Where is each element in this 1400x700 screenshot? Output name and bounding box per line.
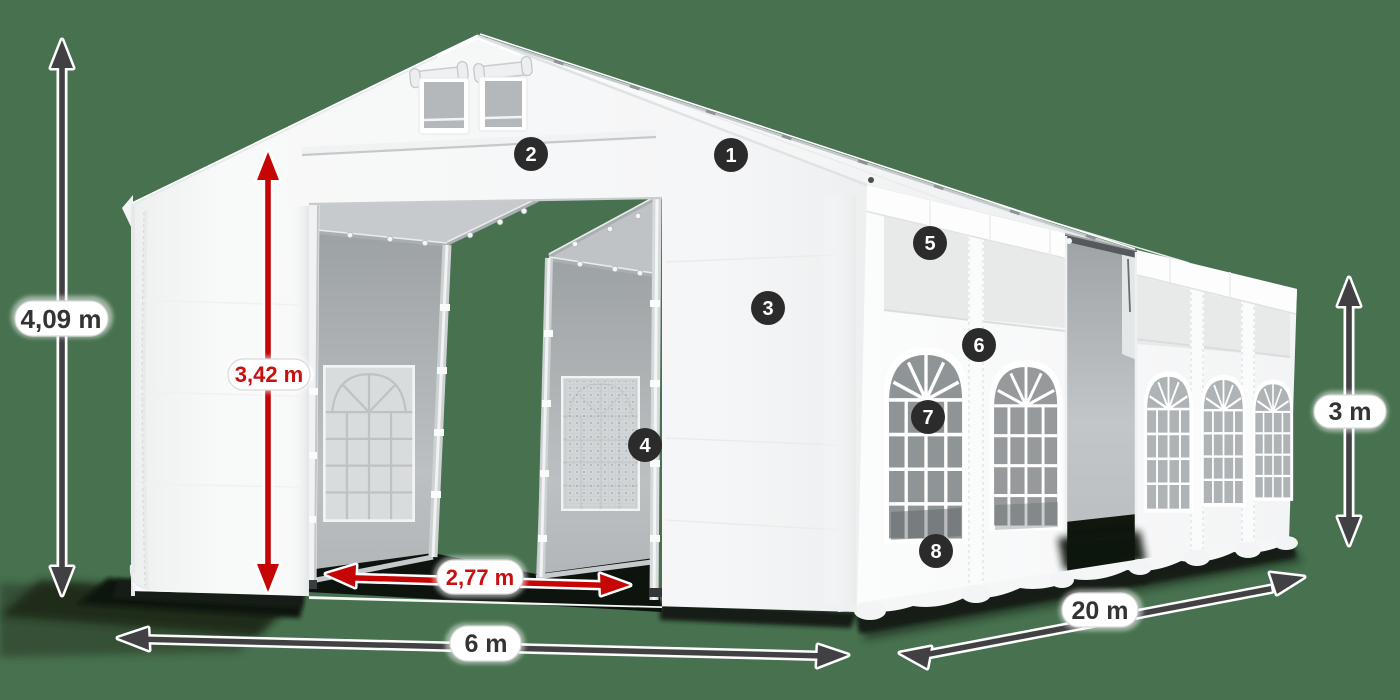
svg-text:20 m: 20 m: [1072, 597, 1129, 625]
svg-text:8: 8: [930, 541, 941, 563]
svg-text:6 m: 6 m: [464, 630, 507, 658]
svg-text:2,77 m: 2,77 m: [446, 565, 515, 590]
svg-text:4,09 m: 4,09 m: [21, 304, 102, 334]
svg-text:4: 4: [639, 435, 651, 457]
svg-text:2: 2: [525, 144, 536, 166]
svg-text:7: 7: [922, 407, 933, 429]
svg-text:3 m: 3 m: [1328, 398, 1371, 426]
svg-text:3,42 m: 3,42 m: [235, 362, 304, 387]
svg-text:3: 3: [762, 298, 773, 320]
svg-text:1: 1: [725, 145, 736, 167]
svg-text:6: 6: [973, 335, 984, 357]
svg-text:5: 5: [924, 233, 935, 255]
